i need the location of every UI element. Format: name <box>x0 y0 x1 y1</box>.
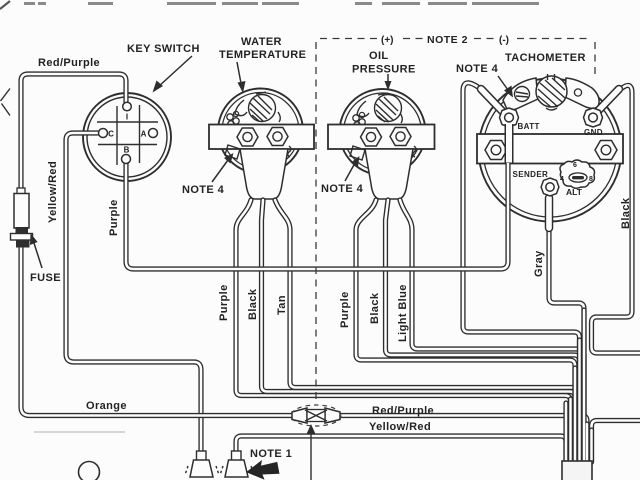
svg-text:Orange: Orange <box>86 400 127 412</box>
svg-text:OIL: OIL <box>369 50 389 62</box>
svg-text:Purple: Purple <box>339 291 351 328</box>
svg-text:6: 6 <box>573 162 577 169</box>
svg-text:NOTE 4: NOTE 4 <box>456 63 499 75</box>
svg-text:Black: Black <box>369 292 381 324</box>
svg-text:Yellow/Red: Yellow/Red <box>47 161 59 223</box>
svg-text:NOTE 4: NOTE 4 <box>321 183 364 195</box>
svg-text:PRESSURE: PRESSURE <box>352 64 416 76</box>
svg-text:(+): (+) <box>381 35 394 46</box>
svg-text:Black: Black <box>620 197 632 229</box>
svg-text:NOTE 2: NOTE 2 <box>427 34 468 46</box>
svg-text:Yellow/Red: Yellow/Red <box>369 421 431 433</box>
svg-text:TEMPERATURE: TEMPERATURE <box>219 49 306 61</box>
svg-text:SENDER: SENDER <box>513 170 549 179</box>
svg-text:KEY SWITCH: KEY SWITCH <box>127 43 200 55</box>
svg-text:Black: Black <box>247 288 259 320</box>
svg-text:(-): (-) <box>499 35 509 46</box>
svg-text:Tan: Tan <box>276 295 288 315</box>
svg-text:GND: GND <box>584 128 603 137</box>
svg-text:Gray: Gray <box>533 250 545 277</box>
svg-text:Light Blue: Light Blue <box>397 284 409 342</box>
svg-text:ALT: ALT <box>566 187 583 197</box>
svg-text:4: 4 <box>560 176 564 183</box>
svg-text:A: A <box>141 130 147 139</box>
svg-text:C: C <box>108 130 114 139</box>
svg-text:NOTE 1: NOTE 1 <box>250 448 292 460</box>
svg-text:TACHOMETER: TACHOMETER <box>505 52 586 64</box>
svg-text:8: 8 <box>589 176 593 183</box>
svg-text:Red/Purple: Red/Purple <box>372 405 434 417</box>
svg-text:Purple: Purple <box>218 284 230 321</box>
svg-text:FUSE: FUSE <box>30 272 61 284</box>
svg-text:NOTE 4: NOTE 4 <box>182 184 225 196</box>
svg-text:B: B <box>124 146 130 155</box>
svg-text:BATT: BATT <box>518 122 540 131</box>
svg-text:Red/Purple: Red/Purple <box>38 57 100 69</box>
svg-text:I: I <box>126 113 128 122</box>
svg-text:WATER: WATER <box>241 36 282 48</box>
svg-text:Purple: Purple <box>108 199 120 236</box>
